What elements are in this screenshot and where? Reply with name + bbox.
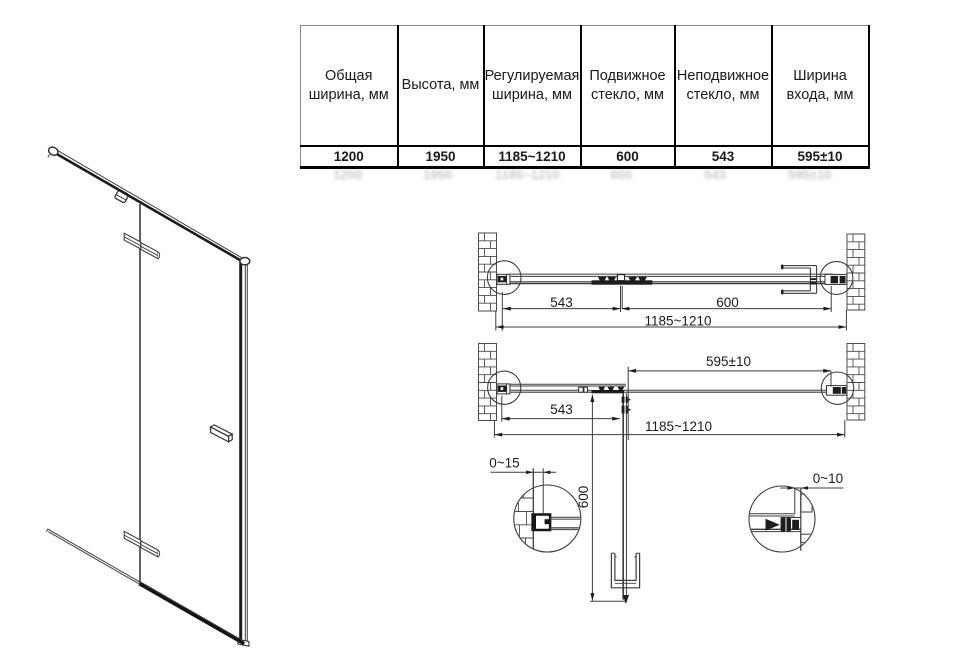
svg-text:543: 543: [550, 402, 573, 417]
svg-text:1185~1210: 1185~1210: [645, 313, 712, 328]
svg-text:543: 543: [550, 295, 573, 310]
svg-text:595±10: 595±10: [706, 354, 751, 369]
svg-text:0~15: 0~15: [489, 455, 519, 470]
svg-text:1185~1210: 1185~1210: [645, 419, 712, 434]
svg-text:0~10: 0~10: [813, 471, 843, 486]
svg-text:600: 600: [716, 295, 739, 310]
